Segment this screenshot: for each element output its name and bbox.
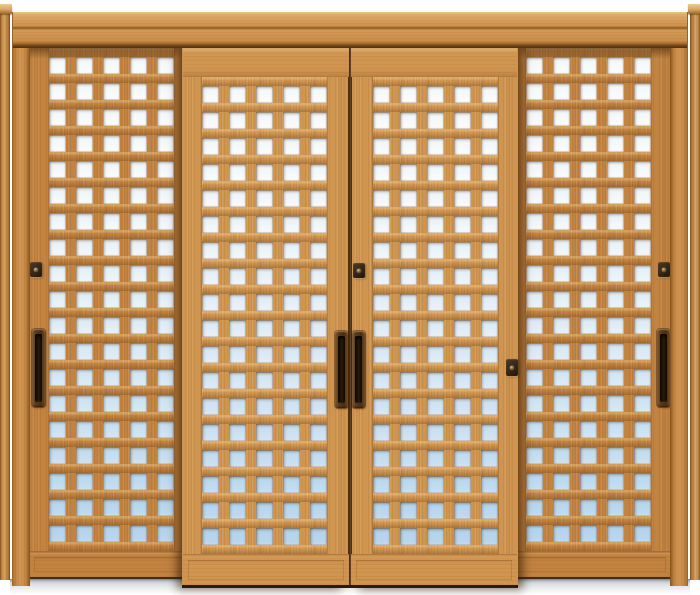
lattice-crossbar bbox=[373, 103, 498, 112]
lattice-edge-seam bbox=[498, 77, 499, 554]
glass-pane bbox=[229, 398, 246, 415]
lattice-crossbar bbox=[202, 441, 327, 450]
glass-pane bbox=[454, 242, 471, 259]
glass-pane bbox=[427, 138, 444, 155]
glass-pane bbox=[256, 346, 273, 363]
glass-pane bbox=[229, 216, 246, 233]
glass-pane bbox=[454, 398, 471, 415]
glass-pane bbox=[310, 528, 327, 545]
glass-pane bbox=[310, 216, 327, 233]
glass-pane bbox=[481, 138, 498, 155]
glass-pane bbox=[202, 476, 219, 493]
glass-pane bbox=[454, 294, 471, 311]
glass-pane bbox=[256, 372, 273, 389]
glass-pane bbox=[427, 320, 444, 337]
head-beam bbox=[12, 12, 688, 48]
glass-pane bbox=[454, 190, 471, 207]
glass-pane bbox=[202, 190, 219, 207]
glass-pane bbox=[454, 86, 471, 103]
glass-pane bbox=[310, 242, 327, 259]
glass-pane bbox=[283, 190, 300, 207]
glass-pane bbox=[427, 112, 444, 129]
glass-pane bbox=[310, 190, 327, 207]
glass-pane bbox=[256, 398, 273, 415]
glass-pane bbox=[481, 372, 498, 389]
glass-pane bbox=[310, 372, 327, 389]
panel-bottom-rail bbox=[183, 554, 349, 585]
glass-pane bbox=[373, 112, 390, 129]
glass-pane bbox=[283, 502, 300, 519]
door-panel-3 bbox=[350, 45, 518, 588]
glass-pane bbox=[481, 528, 498, 545]
glass-pane bbox=[310, 294, 327, 311]
lattice-crossbar bbox=[373, 337, 498, 346]
glass-pane bbox=[427, 476, 444, 493]
glass-pane bbox=[400, 112, 417, 129]
lattice-edge-seam bbox=[327, 77, 328, 554]
glass-pane bbox=[256, 138, 273, 155]
lattice-crossbar bbox=[373, 545, 498, 554]
lattice-crossbar bbox=[373, 311, 498, 320]
glass-pane bbox=[373, 190, 390, 207]
glass-pane bbox=[400, 528, 417, 545]
glass-pane bbox=[202, 164, 219, 181]
lattice-crossbar bbox=[373, 233, 498, 242]
glass-pane bbox=[454, 216, 471, 233]
glass-pane bbox=[310, 450, 327, 467]
glass-pane bbox=[283, 86, 300, 103]
door-handle bbox=[335, 331, 348, 408]
glass-pane bbox=[373, 164, 390, 181]
glass-pane bbox=[229, 268, 246, 285]
glass-pane bbox=[373, 372, 390, 389]
glass-pane bbox=[454, 502, 471, 519]
glass-pane bbox=[310, 346, 327, 363]
glass-pane bbox=[202, 216, 219, 233]
glass-pane bbox=[310, 164, 327, 181]
glass-pane bbox=[310, 268, 327, 285]
glass-pane bbox=[400, 424, 417, 441]
glass-pane bbox=[256, 86, 273, 103]
glass-pane bbox=[283, 528, 300, 545]
sliding-door-product-photo bbox=[0, 0, 700, 595]
glass-pane bbox=[427, 216, 444, 233]
glass-pane bbox=[373, 86, 390, 103]
panel-bottom-rail bbox=[351, 554, 517, 585]
glass-pane bbox=[283, 138, 300, 155]
glass-pane bbox=[283, 164, 300, 181]
glass-pane bbox=[373, 346, 390, 363]
glass-pane bbox=[256, 450, 273, 467]
lattice-crossbar bbox=[202, 233, 327, 242]
glass-pane bbox=[481, 502, 498, 519]
glass-pane bbox=[400, 216, 417, 233]
glass-pane bbox=[373, 528, 390, 545]
lattice-crossbar bbox=[202, 415, 327, 424]
glass-pane bbox=[373, 242, 390, 259]
lattice-crossbar bbox=[373, 519, 498, 528]
glass-pane bbox=[229, 112, 246, 129]
door-lock bbox=[353, 263, 365, 278]
glass-pane bbox=[283, 346, 300, 363]
glass-pane bbox=[373, 294, 390, 311]
panel-top-rail bbox=[183, 46, 349, 77]
door-panel-2 bbox=[182, 45, 350, 588]
glass-pane bbox=[427, 242, 444, 259]
glass-pane bbox=[373, 268, 390, 285]
glass-pane bbox=[373, 138, 390, 155]
glass-pane bbox=[256, 294, 273, 311]
glass-pane bbox=[202, 242, 219, 259]
glass-pane bbox=[427, 528, 444, 545]
glass-pane bbox=[229, 450, 246, 467]
door-lock bbox=[506, 359, 518, 376]
glass-pane bbox=[310, 320, 327, 337]
glass-pane bbox=[202, 346, 219, 363]
lattice-crossbar bbox=[373, 441, 498, 450]
glass-pane bbox=[229, 476, 246, 493]
glass-pane bbox=[481, 476, 498, 493]
glass-pane bbox=[310, 86, 327, 103]
glass-pane bbox=[454, 528, 471, 545]
glass-pane bbox=[256, 502, 273, 519]
glass-pane bbox=[256, 112, 273, 129]
glass-pane bbox=[481, 346, 498, 363]
lattice-crossbar bbox=[373, 467, 498, 476]
glass-pane bbox=[202, 424, 219, 441]
glass-pane bbox=[481, 450, 498, 467]
glass-pane bbox=[454, 424, 471, 441]
glass-pane bbox=[481, 190, 498, 207]
glass-pane bbox=[373, 398, 390, 415]
glass-pane bbox=[427, 268, 444, 285]
glass-pane bbox=[400, 242, 417, 259]
glass-pane bbox=[310, 476, 327, 493]
lattice-crossbar bbox=[373, 493, 498, 502]
glass-pane bbox=[400, 476, 417, 493]
post-left bbox=[0, 8, 10, 580]
glass-pane bbox=[427, 86, 444, 103]
glass-pane bbox=[481, 216, 498, 233]
glass-pane bbox=[400, 268, 417, 285]
glass-pane bbox=[283, 112, 300, 129]
glass-pane bbox=[229, 372, 246, 389]
glass-pane bbox=[481, 398, 498, 415]
post-right bbox=[690, 8, 700, 580]
glass-pane bbox=[373, 450, 390, 467]
glass-pane bbox=[481, 424, 498, 441]
glass-pane bbox=[427, 190, 444, 207]
glass-pane bbox=[454, 372, 471, 389]
lattice-crossbar bbox=[202, 389, 327, 398]
glass-pane bbox=[202, 528, 219, 545]
glass-pane bbox=[256, 476, 273, 493]
panel-top-rail bbox=[351, 46, 517, 77]
glass-pane bbox=[256, 164, 273, 181]
glass-pane bbox=[202, 398, 219, 415]
glass-pane bbox=[481, 242, 498, 259]
glass-pane bbox=[229, 242, 246, 259]
glass-pane bbox=[283, 294, 300, 311]
glass-pane bbox=[481, 268, 498, 285]
glass-pane bbox=[202, 112, 219, 129]
glass-pane bbox=[310, 424, 327, 441]
glass-pane bbox=[310, 112, 327, 129]
glass-pane bbox=[229, 320, 246, 337]
glass-pane bbox=[481, 112, 498, 129]
glass-pane bbox=[202, 294, 219, 311]
glass-pane bbox=[229, 138, 246, 155]
lattice-crossbar bbox=[202, 519, 327, 528]
lattice-crossbar bbox=[202, 363, 327, 372]
glass-pane bbox=[283, 450, 300, 467]
glass-pane bbox=[454, 476, 471, 493]
lattice-crossbar bbox=[202, 259, 327, 268]
lattice-crossbar bbox=[373, 181, 498, 190]
glass-pane bbox=[202, 450, 219, 467]
glass-pane bbox=[400, 164, 417, 181]
glass-pane bbox=[202, 372, 219, 389]
glass-pane bbox=[229, 346, 246, 363]
glass-pane bbox=[202, 138, 219, 155]
handle-slot bbox=[338, 336, 345, 403]
lattice-crossbar bbox=[202, 467, 327, 476]
glass-pane bbox=[229, 190, 246, 207]
lattice-crossbar bbox=[202, 493, 327, 502]
glass-pane bbox=[427, 164, 444, 181]
glass-pane bbox=[256, 424, 273, 441]
glass-pane bbox=[427, 502, 444, 519]
lattice-crossbar bbox=[373, 77, 498, 86]
glass-pane bbox=[229, 528, 246, 545]
lattice-crossbar bbox=[202, 311, 327, 320]
glass-pane bbox=[229, 164, 246, 181]
glass-pane bbox=[454, 346, 471, 363]
lattice-crossbar bbox=[373, 207, 498, 216]
lattice-crossbar bbox=[373, 259, 498, 268]
glass-pane bbox=[283, 216, 300, 233]
glass-pane bbox=[454, 320, 471, 337]
glass-pane bbox=[256, 320, 273, 337]
glass-pane bbox=[454, 450, 471, 467]
glass-pane bbox=[310, 138, 327, 155]
lattice-crossbar bbox=[373, 285, 498, 294]
lock-knob bbox=[510, 365, 515, 370]
glass-pane bbox=[283, 424, 300, 441]
glass-pane bbox=[481, 86, 498, 103]
glass-pane bbox=[454, 268, 471, 285]
glass-pane bbox=[256, 216, 273, 233]
glass-pane bbox=[400, 320, 417, 337]
glass-pane bbox=[229, 294, 246, 311]
glass-pane bbox=[427, 294, 444, 311]
glass-pane bbox=[481, 164, 498, 181]
handle-slot bbox=[355, 336, 362, 403]
glass-pane bbox=[202, 320, 219, 337]
glass-pane bbox=[373, 216, 390, 233]
glass-pane bbox=[400, 190, 417, 207]
glass-pane bbox=[202, 502, 219, 519]
glass-pane bbox=[373, 502, 390, 519]
lattice-crossbar bbox=[373, 129, 498, 138]
glass-pane bbox=[427, 346, 444, 363]
glass-pane bbox=[454, 138, 471, 155]
glass-pane bbox=[256, 190, 273, 207]
glass-pane bbox=[373, 424, 390, 441]
glass-pane bbox=[283, 268, 300, 285]
lattice-crossbar bbox=[202, 181, 327, 190]
glass-pane bbox=[256, 268, 273, 285]
glass-pane bbox=[283, 372, 300, 389]
glass-pane bbox=[400, 450, 417, 467]
glass-pane bbox=[229, 502, 246, 519]
glass-pane bbox=[256, 242, 273, 259]
glass-pane bbox=[454, 112, 471, 129]
lattice-crossbar bbox=[202, 77, 327, 86]
lattice-crossbar bbox=[373, 155, 498, 164]
glass-pane bbox=[400, 86, 417, 103]
glass-pane bbox=[373, 476, 390, 493]
glass-pane bbox=[481, 320, 498, 337]
glass-pane bbox=[427, 450, 444, 467]
lattice-crossbar bbox=[202, 545, 327, 554]
glass-pane bbox=[427, 398, 444, 415]
lattice-crossbar bbox=[202, 337, 327, 346]
glass-pane bbox=[400, 138, 417, 155]
door-handle bbox=[352, 331, 365, 408]
glass-pane bbox=[256, 528, 273, 545]
glass-pane bbox=[400, 502, 417, 519]
glass-pane bbox=[400, 294, 417, 311]
glass-pane bbox=[481, 294, 498, 311]
panels-front bbox=[0, 0, 700, 595]
lattice-crossbar bbox=[202, 103, 327, 112]
glass-pane bbox=[283, 242, 300, 259]
glass-pane bbox=[310, 502, 327, 519]
glass-pane bbox=[427, 424, 444, 441]
post-cap-left bbox=[0, 4, 12, 14]
glass-pane bbox=[202, 268, 219, 285]
lattice-crossbar bbox=[373, 363, 498, 372]
glass-pane bbox=[373, 320, 390, 337]
glass-pane bbox=[400, 398, 417, 415]
glass-pane bbox=[202, 86, 219, 103]
glass-pane bbox=[229, 86, 246, 103]
glass-pane bbox=[283, 476, 300, 493]
lattice-crossbar bbox=[202, 207, 327, 216]
glass-pane bbox=[427, 372, 444, 389]
lattice-crossbar bbox=[373, 415, 498, 424]
glass-pane bbox=[229, 424, 246, 441]
lattice-crossbar bbox=[202, 155, 327, 164]
lattice-crossbar bbox=[202, 285, 327, 294]
glass-pane bbox=[400, 346, 417, 363]
glass-pane bbox=[400, 372, 417, 389]
post-cap-right bbox=[688, 4, 700, 14]
lattice-crossbar bbox=[202, 129, 327, 138]
glass-pane bbox=[283, 398, 300, 415]
lock-knob bbox=[357, 268, 362, 273]
glass-pane bbox=[310, 398, 327, 415]
glass-pane bbox=[454, 164, 471, 181]
lattice-crossbar bbox=[373, 389, 498, 398]
glass-pane bbox=[283, 320, 300, 337]
